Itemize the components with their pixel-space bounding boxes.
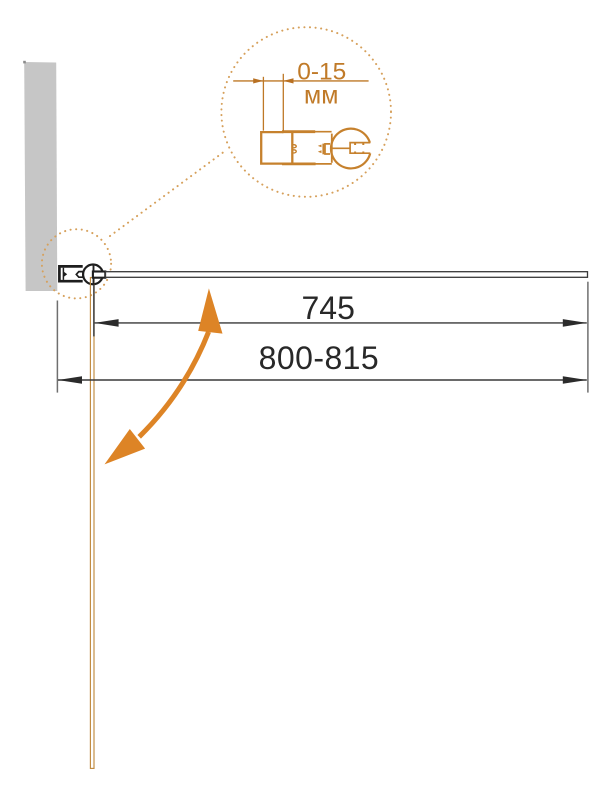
- svg-text:800-815: 800-815: [259, 340, 380, 376]
- svg-text:мм: мм: [304, 82, 338, 110]
- svg-text:745: 745: [302, 290, 355, 326]
